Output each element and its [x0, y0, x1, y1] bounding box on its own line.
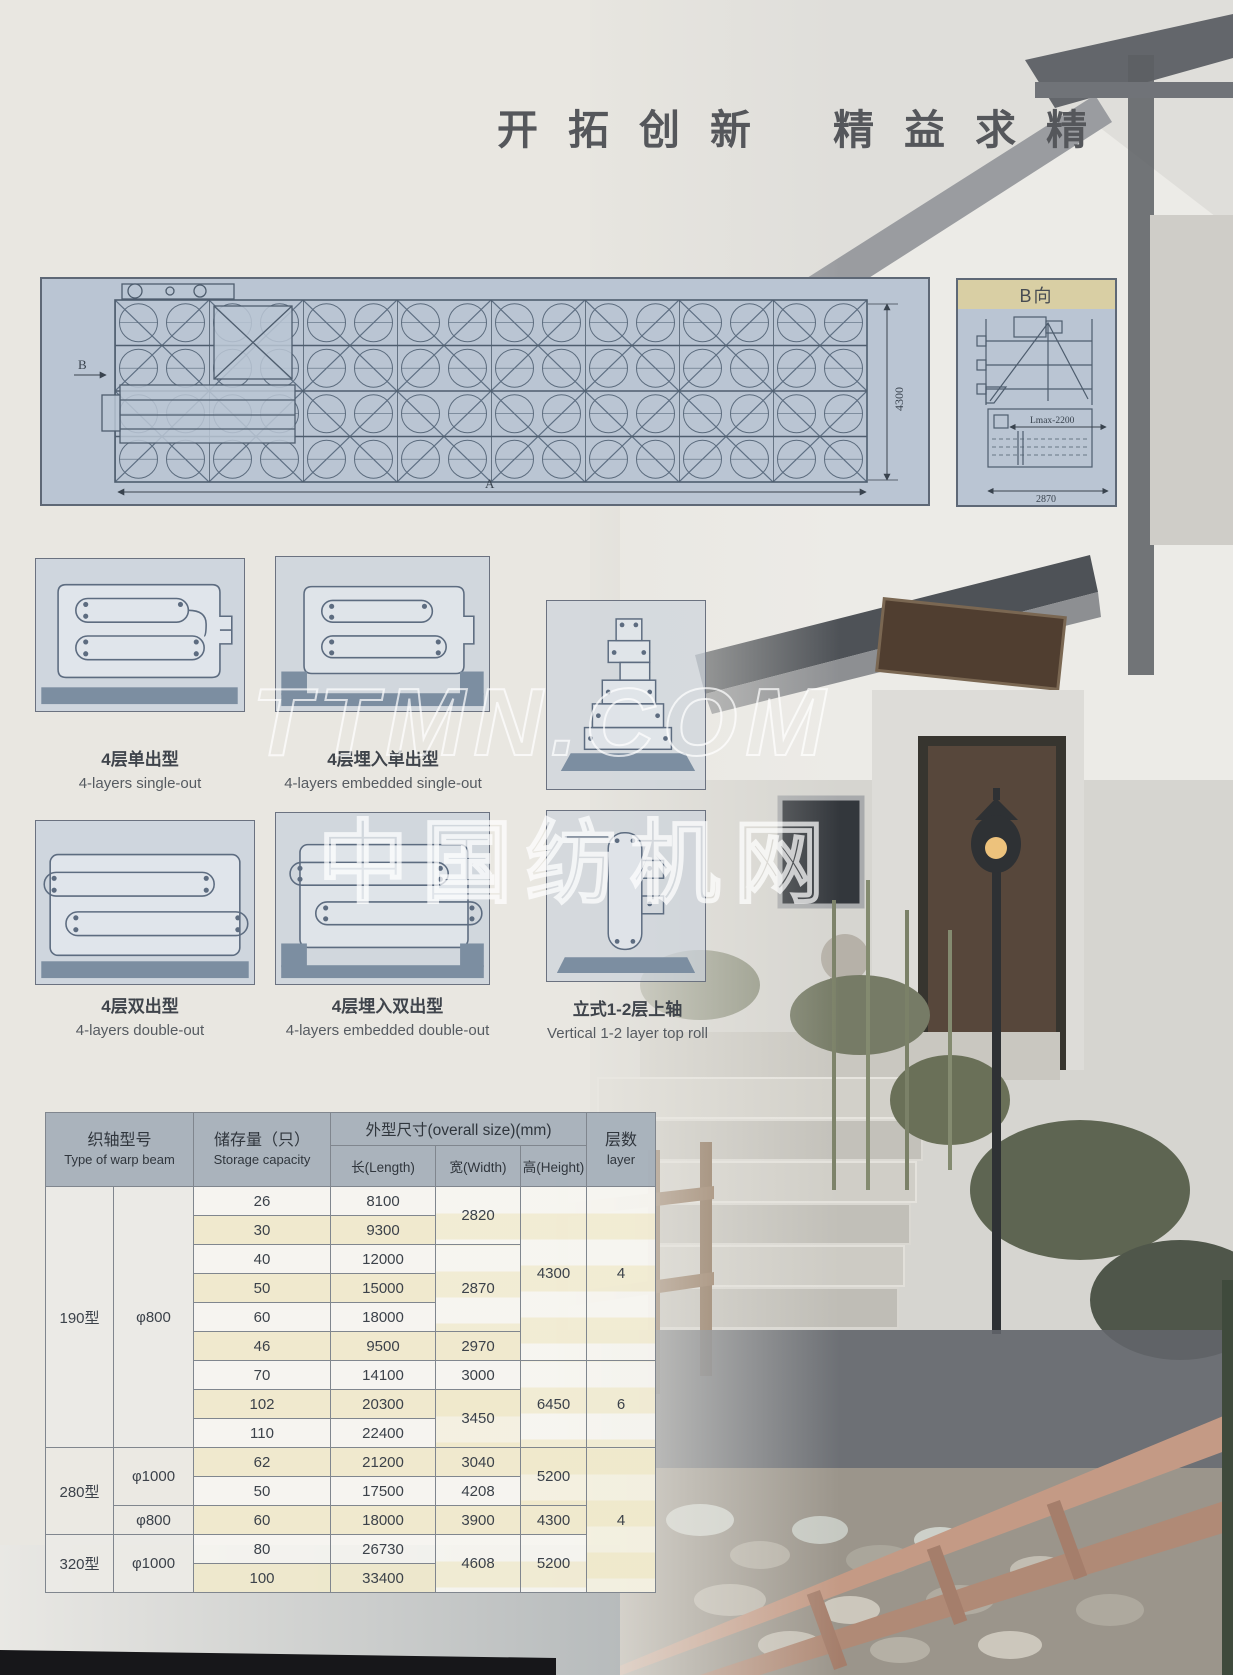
table-row: 280型 φ1000 6221200 3040 5200 4: [46, 1448, 656, 1477]
slogan-left: 开拓创新: [497, 96, 781, 156]
diameter-cell: φ1000: [114, 1448, 194, 1506]
table-row: 320型 φ1000 8026730 4608 5200: [46, 1535, 656, 1564]
diameter-cell: φ800: [114, 1187, 194, 1448]
svg-text:A: A: [485, 476, 495, 491]
header-type: 织轴型号 Type of warp beam: [46, 1113, 194, 1187]
diagram-4layer-embedded-double-out: [275, 812, 490, 985]
diagram-4layer-double-out: [35, 820, 255, 985]
type-cell: 280型: [46, 1448, 114, 1535]
main-blueprint-panel: 4300 A B: [40, 277, 930, 506]
label-4layer-double-out: 4层双出型 4-layers double-out: [35, 995, 245, 1041]
main-blueprint-drawing: 4300 A B: [42, 279, 928, 504]
b-view-drawing: Lmax-2200 2870: [958, 309, 1115, 505]
diagram-4layer-single-out: [35, 558, 245, 712]
header-height: 高(Height): [521, 1146, 587, 1187]
type-cell: 320型: [46, 1535, 114, 1593]
diagram-vertical-upper: [546, 600, 706, 790]
header-size-group: 外型尺寸(overall size)(mm): [331, 1113, 587, 1146]
spec-table-wrap: 织轴型号 Type of warp beam 储存量（只） Storage ca…: [45, 1112, 656, 1593]
type-cell: 190型: [46, 1187, 114, 1448]
section-B-marker: B: [74, 357, 106, 375]
label-4layer-embedded-single-out: 4层埋入单出型 4-layers embedded single-out: [268, 748, 498, 794]
catalog-page: 开拓创新 精益求精: [0, 0, 1233, 1675]
table-row: 190型 φ800 268100 2820 4300 4: [46, 1187, 656, 1216]
svg-text:2870: 2870: [1036, 494, 1056, 505]
dim-2870: 2870: [988, 491, 1108, 505]
table-row: φ800 6018000 3900 4300: [46, 1506, 656, 1535]
dim-4300: 4300: [868, 304, 906, 480]
label-4layer-single-out: 4层单出型 4-layers single-out: [35, 748, 245, 794]
header-width: 宽(Width): [436, 1146, 521, 1187]
header-length: 长(Length): [331, 1146, 436, 1187]
diameter-cell: φ1000: [114, 1535, 194, 1593]
svg-text:B: B: [78, 357, 87, 372]
label-4layer-embedded-double-out: 4层埋入双出型 4-layers embedded double-out: [265, 995, 510, 1041]
header-capacity: 储存量（只） Storage capacity: [194, 1113, 331, 1187]
diameter-cell: φ800: [114, 1506, 194, 1535]
diagram-4layer-embedded-single-out: [275, 556, 490, 712]
b-view-panel: B向 Lmax-2200: [956, 278, 1117, 507]
b-view-title: B向: [958, 280, 1115, 309]
spec-table: 织轴型号 Type of warp beam 储存量（只） Storage ca…: [45, 1112, 656, 1593]
svg-text:Lmax-2200: Lmax-2200: [1030, 416, 1075, 426]
label-vertical-top-roll: 立式1-2层上轴 Vertical 1-2 layer top roll: [530, 998, 725, 1044]
svg-text:4300: 4300: [892, 387, 906, 411]
header-layers: 层数 layer: [587, 1113, 656, 1187]
slogan-right: 精益求精: [833, 96, 1117, 156]
diagram-vertical-lower: [546, 810, 706, 982]
